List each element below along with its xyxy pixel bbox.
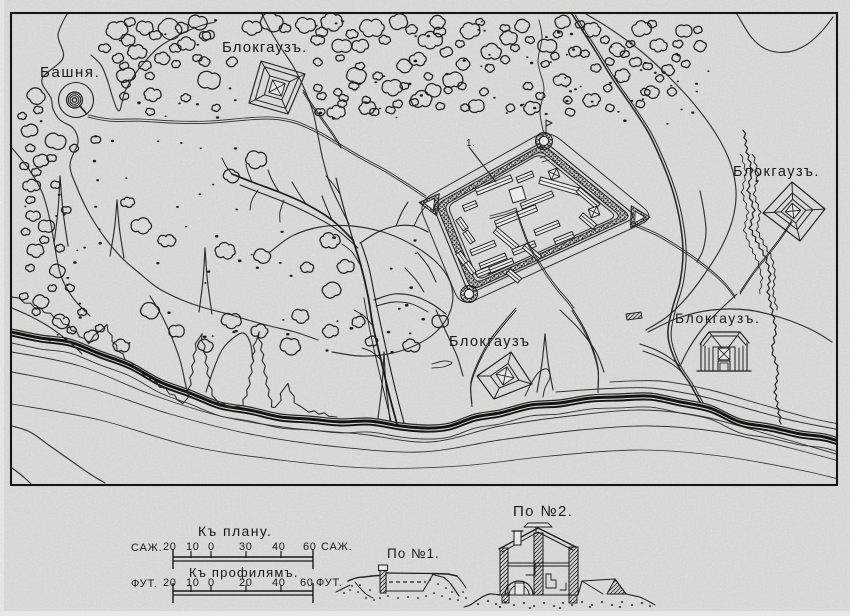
svg-text:ФУТ.: ФУТ. (316, 577, 343, 589)
svg-text:Блокгаузъ.: Блокгаузъ. (675, 310, 760, 326)
svg-text:20: 20 (163, 577, 176, 589)
svg-text:САЖ.: САЖ. (321, 541, 352, 553)
svg-text:Блокгаузъ: Блокгаузъ (449, 334, 530, 350)
svg-text:По №1.: По №1. (387, 546, 440, 561)
svg-text:40: 40 (272, 541, 285, 553)
svg-text:1.: 1. (466, 138, 475, 149)
svg-text:40: 40 (272, 577, 285, 589)
svg-text:Башня.: Башня. (40, 64, 100, 81)
svg-text:Къ плану.: Къ плану. (198, 523, 272, 539)
svg-text:По №2.: По №2. (513, 503, 573, 520)
svg-text:10: 10 (186, 577, 199, 589)
svg-text:60: 60 (300, 577, 313, 589)
svg-text:10: 10 (186, 541, 199, 553)
svg-text:Блокгаузъ.: Блокгаузъ. (733, 164, 820, 180)
svg-text:60: 60 (303, 541, 316, 553)
svg-text:САЖ.: САЖ. (131, 542, 162, 554)
svg-text:20: 20 (163, 541, 176, 553)
svg-text:Блокгаузъ.: Блокгаузъ. (222, 39, 307, 56)
svg-text:ФУТ.: ФУТ. (131, 578, 158, 590)
